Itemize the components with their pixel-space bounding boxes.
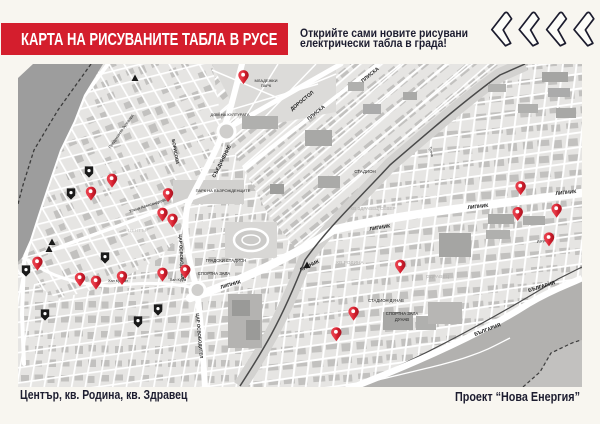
svg-text:КВ РОДИНА: КВ РОДИНА — [336, 260, 364, 266]
svg-text:СПОРТНА ЗАЛА: СПОРТНА ЗАЛА — [386, 311, 419, 316]
svg-text:ДУНАВ: ДУНАВ — [395, 317, 409, 322]
svg-text:СПОРТНА ЗАЛА: СПОРТНА ЗАЛА — [198, 271, 231, 276]
svg-text:Хан Крум: Хан Крум — [170, 278, 187, 282]
svg-text:ПАРК: ПАРК — [261, 83, 272, 88]
svg-text:ДОМ НА КУЛТУРАТА: ДОМ НА КУЛТУРАТА — [210, 112, 249, 117]
svg-text:ЦЕНТЪР: ЦЕНТЪР — [128, 228, 148, 234]
svg-text:ПАРК НА ВЪЗРОЖДЕНЦИТЕ: ПАРК НА ВЪЗРОЖДЕНЦИТЕ — [196, 188, 251, 193]
svg-text:ГРАДСКИ СТАДИОН: ГРАДСКИ СТАДИОН — [206, 258, 247, 263]
svg-text:ЗДРАВЕЦ: ЗДРАВЕЦ — [427, 274, 450, 280]
svg-text:СТАДИОН ДУНАВ: СТАДИОН ДУНАВ — [368, 298, 404, 303]
svg-text:КВ ЗДРАВЕЦ СЕВЕР: КВ ЗДРАВЕЦ СЕВЕР — [350, 206, 395, 211]
svg-text:СТАДИОН: СТАДИОН — [354, 169, 375, 174]
